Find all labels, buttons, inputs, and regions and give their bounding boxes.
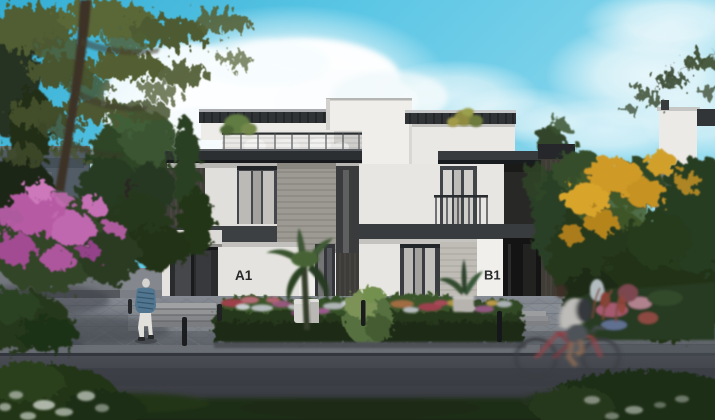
- svg-text:B1: B1: [484, 268, 501, 283]
- svg-text:A1: A1: [235, 268, 253, 283]
